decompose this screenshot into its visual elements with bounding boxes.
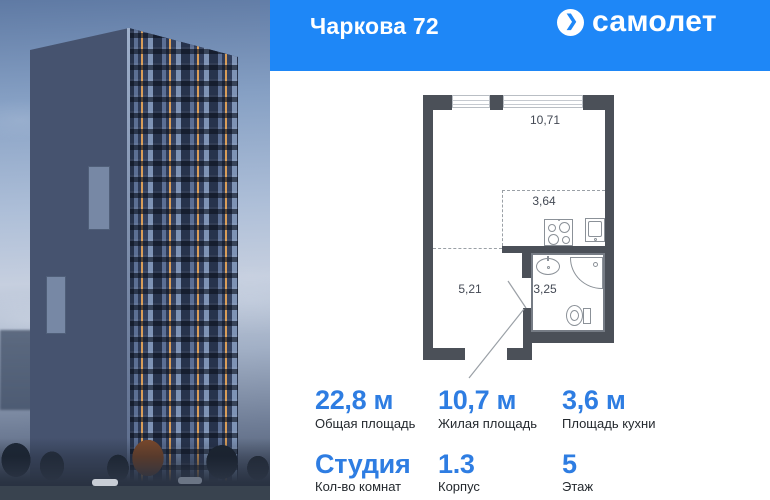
room-area-label-bathroom: 3,25 <box>517 282 573 296</box>
stat-total-area-label: Общая площадь <box>315 417 415 430</box>
floor-plan: 10,71 3,64 5,21 3,25 <box>423 95 614 360</box>
info-panel: Чаркова 72 ❯ самолет <box>270 0 770 500</box>
stat-floor-value: 5 <box>562 451 577 478</box>
room-area-label-hallway: 5,21 <box>442 282 498 296</box>
stat-living-area-label: Жилая площадь <box>438 417 537 430</box>
room-area-label-kitchen: 3,64 <box>516 194 572 208</box>
stat-building-label: Корпус <box>438 480 480 493</box>
room-area-label-living: 10,71 <box>517 113 573 127</box>
tower-facade-left <box>30 26 129 486</box>
stat-kitchen-area-value: 3,6 м <box>562 387 626 414</box>
header-bar: Чаркова 72 ❯ самолет <box>270 0 770 71</box>
stat-rooms-label: Кол-во комнат <box>315 480 401 493</box>
balcony-glazing <box>88 166 110 230</box>
brand-name: самолет <box>592 5 717 39</box>
tower-facade-right <box>129 26 238 486</box>
project-title: Чаркова 72 <box>310 13 439 40</box>
tower-corner-edge <box>127 28 130 486</box>
car-silhouette <box>92 479 118 486</box>
brand-logo: ❯ самолет <box>557 7 717 37</box>
stat-living-area-value: 10,7 м <box>438 387 516 414</box>
stat-building-value: 1.3 <box>438 451 475 478</box>
chevron-right-icon: ❯ <box>565 14 578 30</box>
stat-rooms-value: Студия <box>315 451 410 478</box>
residential-tower <box>30 26 238 486</box>
door-swing-lines <box>423 95 614 385</box>
car-silhouette <box>178 477 202 484</box>
stat-total-area-value: 22,8 м <box>315 387 393 414</box>
stat-kitchen-area-label: Площадь кухни <box>562 417 655 430</box>
road <box>0 486 270 500</box>
building-photo <box>0 0 270 500</box>
balcony-glazing <box>46 276 66 334</box>
stat-floor-label: Этаж <box>562 480 593 493</box>
listing-card: Чаркова 72 ❯ самолет <box>0 0 770 500</box>
brand-arrow-icon: ❯ <box>557 9 584 36</box>
